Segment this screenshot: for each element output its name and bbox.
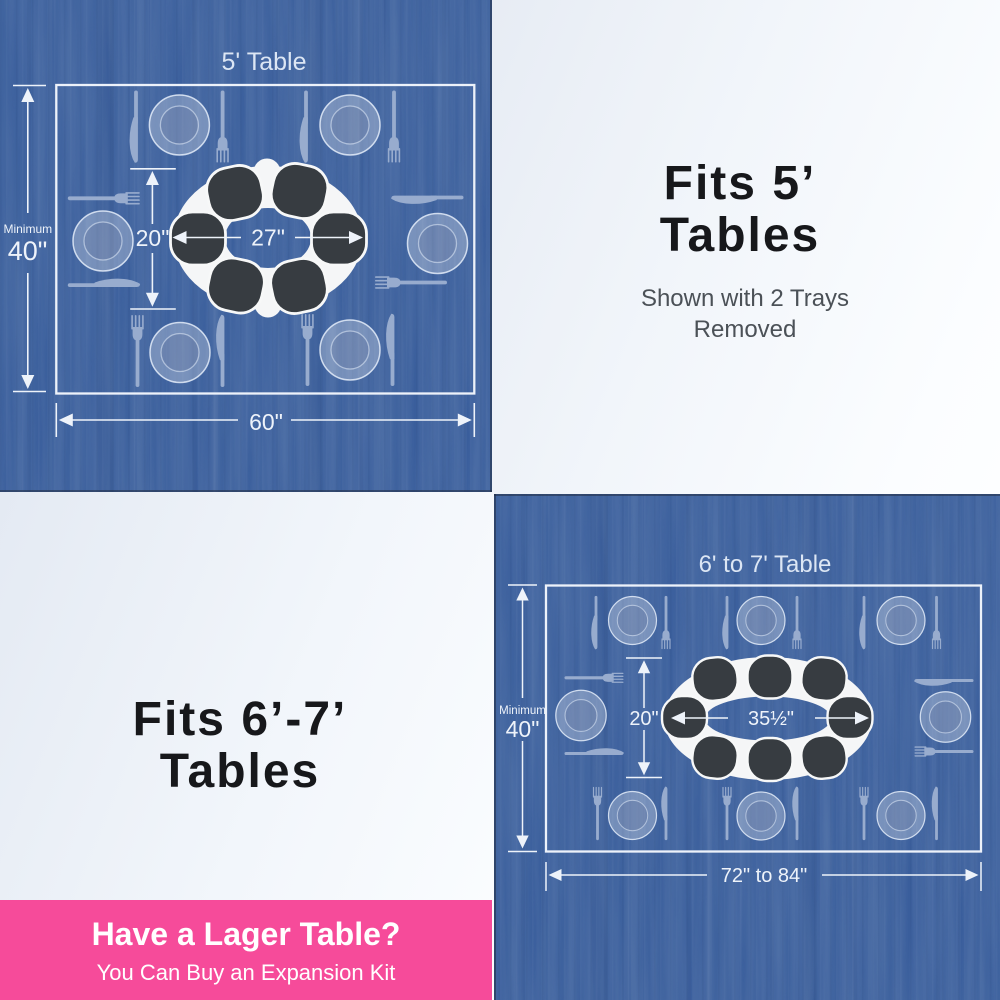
svg-text:35½": 35½" xyxy=(748,708,794,730)
svg-text:40": 40" xyxy=(506,716,540,742)
svg-text:72" to 84": 72" to 84" xyxy=(721,865,807,887)
svg-text:27": 27" xyxy=(251,225,285,251)
svg-text:20": 20" xyxy=(136,225,170,251)
svg-text:6' to 7' Table: 6' to 7' Table xyxy=(699,551,832,578)
svg-text:20": 20" xyxy=(629,708,658,730)
svg-text:40": 40" xyxy=(8,236,48,266)
svg-text:Minimum: Minimum xyxy=(3,222,52,236)
svg-text:5' Table: 5' Table xyxy=(222,48,307,76)
svg-text:60": 60" xyxy=(249,409,283,435)
